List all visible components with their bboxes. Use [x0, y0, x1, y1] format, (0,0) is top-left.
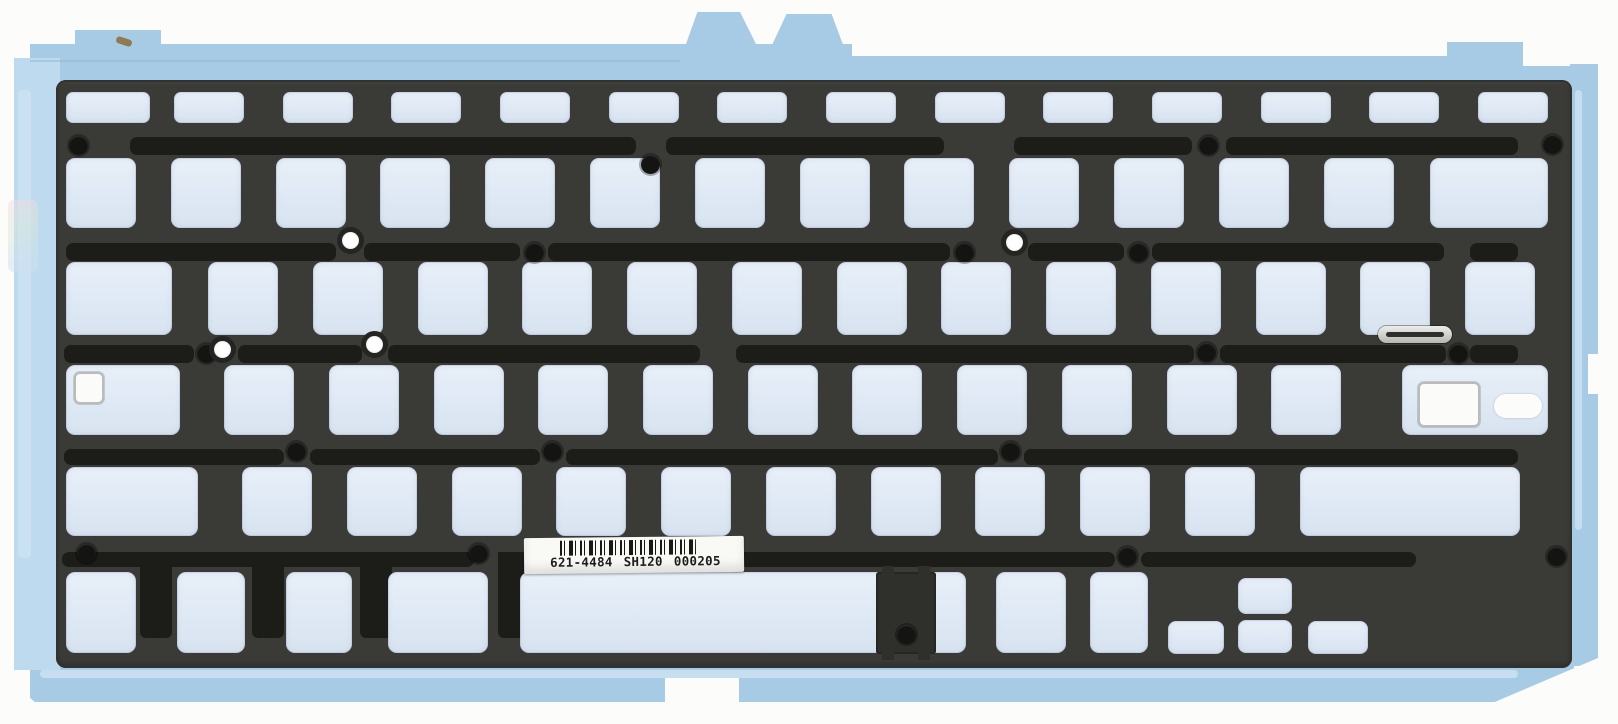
punched-hole	[1547, 547, 1566, 566]
shift-right-key-cutout	[1300, 467, 1520, 536]
f1-key-cutout	[174, 92, 244, 123]
channel-slot-row3	[736, 345, 1194, 363]
o-key-cutout	[1046, 262, 1116, 335]
channel-slot-row1	[130, 137, 636, 155]
minus-key-cutout	[1219, 158, 1289, 228]
channel-slot-row4	[566, 449, 998, 465]
channel-slot-row2	[1470, 243, 1518, 261]
space-inset-nub	[918, 566, 930, 574]
f2-key-cutout	[283, 92, 353, 123]
label-code: SH120	[624, 554, 663, 569]
punched-hole	[543, 442, 562, 461]
quote-key-cutout	[1271, 365, 1341, 435]
digit-8-key-cutout	[904, 158, 974, 228]
channel-slot-row3	[1220, 345, 1446, 363]
c-key-cutout	[452, 467, 522, 536]
punched-hole	[69, 136, 88, 155]
x-key-cutout	[347, 467, 417, 536]
punched-hole	[469, 544, 488, 563]
metal-slot-line	[1386, 332, 1444, 337]
arrow-up-key-cutout	[1238, 578, 1292, 614]
punched-hole	[1199, 136, 1218, 155]
sheet-detail	[8, 200, 38, 272]
punched-hole	[1001, 442, 1020, 461]
i-key-cutout	[941, 262, 1011, 335]
f9-key-cutout	[1043, 92, 1113, 123]
m-key-cutout	[871, 467, 941, 536]
channel-slot-row5	[1141, 552, 1416, 567]
shift-left-key-cutout	[66, 467, 198, 536]
channel-slot-vertical	[252, 552, 284, 638]
punched-hole	[525, 243, 544, 262]
arrow-left-key-cutout	[1168, 621, 1224, 654]
digit-1-key-cutout	[171, 158, 241, 228]
channel-slot-row4	[310, 449, 540, 465]
label-serial: 000205	[674, 553, 721, 568]
space-inset-nub	[918, 651, 930, 660]
delete-key-cutout	[1430, 158, 1548, 228]
f5-key-cutout	[609, 92, 679, 123]
through-hole	[366, 336, 383, 353]
channel-slot-row1	[1226, 137, 1518, 155]
sheet-notch	[1588, 354, 1600, 394]
b-key-cutout	[661, 467, 731, 536]
digit-3-key-cutout	[380, 158, 450, 228]
through-hole	[214, 341, 231, 358]
barcode-label-text: 621-4484SH120000205	[550, 553, 740, 571]
punched-hole	[77, 544, 96, 563]
f8-key-cutout	[935, 92, 1005, 123]
channel-slot-row3	[238, 345, 362, 363]
tab-key-cutout	[66, 262, 172, 335]
channel-slot-row2	[1028, 243, 1124, 261]
channel-slot-row2	[364, 243, 520, 261]
l-key-cutout	[1062, 365, 1132, 435]
grave-key-cutout	[66, 158, 136, 228]
sheet-detail	[1575, 90, 1582, 530]
punched-hole	[1449, 344, 1468, 363]
esc-key-cutout	[66, 92, 150, 123]
fn-key-cutout	[66, 572, 136, 653]
channel-slot-row2	[1152, 243, 1444, 261]
top-center-tab-2	[766, 14, 848, 58]
bracket-right-key-cutout	[1360, 262, 1430, 335]
k-key-cutout	[957, 365, 1027, 435]
g-key-cutout	[643, 365, 713, 435]
digit-4-key-cutout	[485, 158, 555, 228]
top-right-tab	[1447, 42, 1523, 68]
space-inset-nub	[882, 566, 894, 574]
period-key-cutout	[1080, 467, 1150, 536]
through-hole	[342, 232, 359, 249]
sheet-detail	[30, 60, 680, 62]
f3-key-cutout	[391, 92, 461, 123]
channel-slot-row3	[64, 345, 194, 363]
return-insert-capsule	[1494, 394, 1542, 418]
q-key-cutout	[208, 262, 278, 335]
channel-slot-row3	[1470, 345, 1518, 363]
keyboard-backlight-sheet-scan: 621-4484SH120000205	[0, 0, 1618, 724]
arrow-down-key-cutout	[1238, 620, 1292, 653]
sheet-notch	[0, 556, 12, 602]
punched-hole	[197, 344, 216, 363]
control-key-cutout	[177, 572, 245, 653]
channel-slot-row4	[1024, 449, 1518, 465]
d-key-cutout	[434, 365, 504, 435]
f10-key-cutout	[1152, 92, 1222, 123]
blue-sheet	[30, 662, 1532, 702]
slash-key-cutout	[1185, 467, 1255, 536]
sheet-notch	[665, 678, 739, 704]
return-insert-window	[1418, 382, 1480, 427]
digit-9-key-cutout	[1009, 158, 1079, 228]
through-hole	[1006, 234, 1023, 251]
f7-key-cutout	[826, 92, 896, 123]
channel-slot-row3	[388, 345, 700, 363]
power-key-cutout	[1478, 92, 1548, 123]
barcode-label: 621-4484SH120000205	[524, 536, 744, 574]
semicolon-key-cutout	[1167, 365, 1237, 435]
caps-lock-indicator-window	[74, 372, 104, 404]
punched-hole	[897, 625, 916, 644]
punched-hole	[1129, 243, 1148, 262]
p-key-cutout	[1151, 262, 1221, 335]
backslash-key-cutout	[1465, 262, 1535, 335]
comma-key-cutout	[975, 467, 1045, 536]
v-key-cutout	[556, 467, 626, 536]
channel-slot-row1	[1014, 137, 1192, 155]
channel-slot-vertical	[140, 552, 172, 638]
option-key-cutout	[286, 572, 352, 653]
punched-hole	[287, 442, 306, 461]
w-key-cutout	[313, 262, 383, 335]
top-center-tab-1	[681, 12, 763, 58]
s-key-cutout	[329, 365, 399, 435]
digit-7-key-cutout	[800, 158, 870, 228]
digit-0-key-cutout	[1114, 158, 1184, 228]
y-key-cutout	[732, 262, 802, 335]
punched-hole	[641, 155, 660, 174]
digit-2-key-cutout	[276, 158, 346, 228]
f4-key-cutout	[500, 92, 570, 123]
space-inset-nub	[882, 651, 894, 660]
command-right-key-cutout	[996, 572, 1066, 653]
bracket-left-key-cutout	[1256, 262, 1326, 335]
punched-hole	[1118, 547, 1137, 566]
command-key-cutout	[388, 572, 488, 653]
u-key-cutout	[837, 262, 907, 335]
f12-key-cutout	[1369, 92, 1439, 123]
punched-hole	[955, 243, 974, 262]
channel-slot-row2	[548, 243, 950, 261]
j-key-cutout	[852, 365, 922, 435]
channel-slot-row2	[66, 243, 336, 261]
sheet-notch	[0, 290, 14, 334]
option-right-key-cutout	[1090, 572, 1148, 653]
f6-key-cutout	[717, 92, 787, 123]
n-key-cutout	[766, 467, 836, 536]
f11-key-cutout	[1261, 92, 1331, 123]
sheet-detail	[40, 670, 1518, 678]
h-key-cutout	[748, 365, 818, 435]
digit-6-key-cutout	[695, 158, 765, 228]
z-key-cutout	[242, 467, 312, 536]
channel-slot-row4	[64, 449, 284, 465]
channel-slot-row1	[666, 137, 944, 155]
e-key-cutout	[418, 262, 488, 335]
a-key-cutout	[224, 365, 294, 435]
arrow-right-key-cutout	[1308, 621, 1368, 654]
f-key-cutout	[538, 365, 608, 435]
sheet-detail	[18, 90, 31, 558]
r-key-cutout	[522, 262, 592, 335]
equals-key-cutout	[1324, 158, 1394, 228]
label-part-number: 621-4484	[550, 554, 613, 570]
t-key-cutout	[627, 262, 697, 335]
punched-hole	[1197, 343, 1216, 362]
punched-hole	[1543, 135, 1562, 154]
